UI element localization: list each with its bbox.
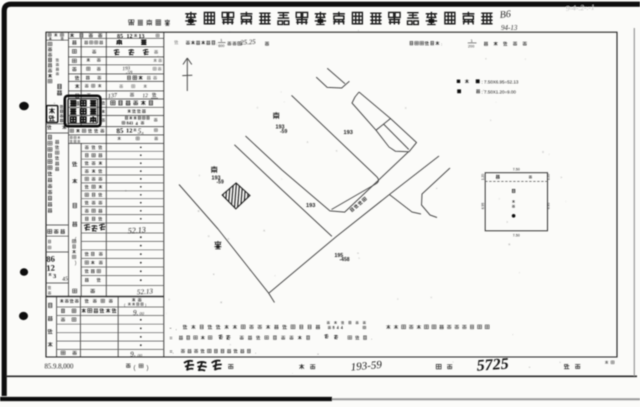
svg-text:7.50: 7.50: [513, 168, 520, 172]
svg-text:200: 200: [468, 45, 474, 49]
svg-text:-59: -59: [280, 129, 287, 135]
svg-text:85: 85: [116, 127, 124, 135]
svg-text:5725: 5725: [476, 356, 509, 375]
svg-text:=.: =.: [170, 350, 174, 356]
svg-text:12: 12: [127, 34, 133, 40]
svg-text:12: 12: [46, 263, 55, 273]
svg-text:B6: B6: [499, 9, 511, 21]
svg-text::: :: [216, 41, 217, 46]
svg-text:12: 12: [142, 93, 148, 99]
svg-text:00: 00: [138, 353, 143, 358]
svg-text:=: =: [170, 336, 173, 342]
svg-text:): ): [147, 365, 149, 371]
svg-text:94-13: 94-13: [501, 24, 518, 32]
svg-text:.: .: [371, 336, 372, 341]
svg-text:25.25: 25.25: [240, 39, 256, 47]
svg-text:-59: -59: [217, 180, 224, 186]
svg-text:1.20: 1.20: [547, 174, 551, 180]
svg-text:193: 193: [344, 130, 353, 136]
svg-text:.: .: [255, 349, 256, 354]
svg-text:: 7.50X6.95=52.13: : 7.50X6.95=52.13: [482, 80, 519, 85]
svg-text:1.20: 1.20: [481, 174, 485, 180]
svg-text:7.50: 7.50: [513, 233, 520, 237]
svg-text:6.95: 6.95: [481, 203, 485, 210]
svg-text:9.: 9.: [133, 309, 139, 317]
svg-text:-458: -458: [340, 257, 350, 263]
svg-text:52.13: 52.13: [137, 287, 154, 296]
svg-text:9-4-.2-.-1: 9-4-.2-.-1: [566, 3, 595, 13]
svg-text:-59: -59: [126, 71, 133, 77]
svg-text:6.95: 6.95: [547, 203, 551, 210]
svg-text:12: 12: [126, 128, 132, 135]
svg-text:844: 844: [333, 325, 345, 330]
svg-text:52.13: 52.13: [128, 225, 147, 235]
svg-text:85: 85: [117, 34, 123, 40]
svg-text:: 7.50X1.20=9.00: : 7.50X1.20=9.00: [482, 89, 517, 94]
svg-text:843: 843: [127, 121, 134, 126]
svg-text:13: 13: [139, 34, 145, 40]
svg-text:85.9.8,000: 85.9.8,000: [45, 363, 74, 370]
svg-text:137: 137: [107, 92, 118, 100]
svg-text:.: .: [176, 326, 177, 332]
svg-text:8: 8: [142, 131, 144, 136]
svg-text:(: (: [134, 365, 136, 371]
svg-text:600: 600: [218, 44, 224, 48]
svg-text::: :: [441, 42, 442, 47]
svg-text:-: -: [170, 326, 172, 332]
svg-text:193: 193: [306, 203, 315, 209]
svg-text:45: 45: [62, 275, 69, 283]
